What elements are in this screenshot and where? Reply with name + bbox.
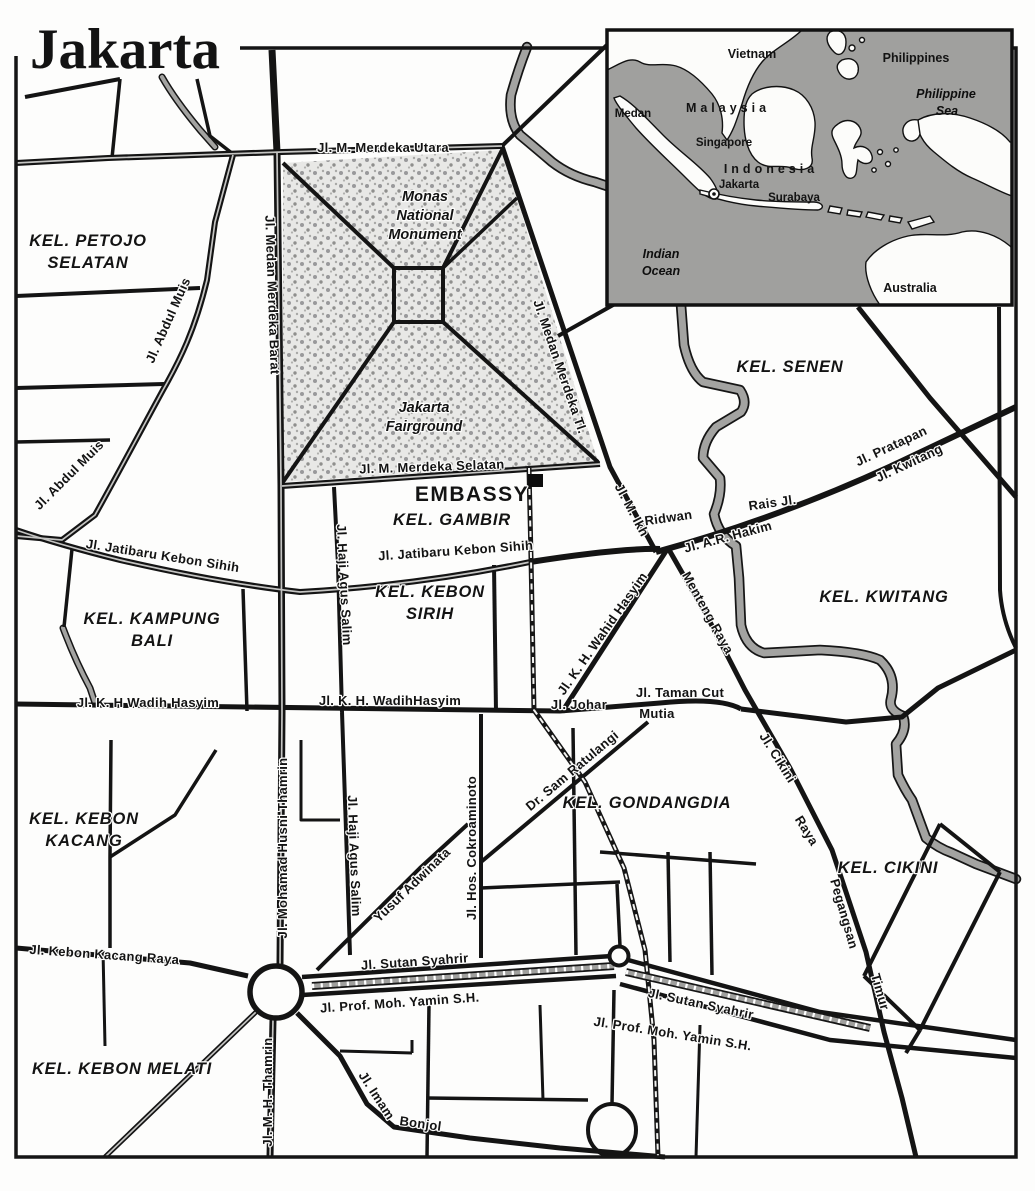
inset-label-jakarta: Jakarta — [719, 179, 760, 191]
street-label-husni-thamrin: Jl. Mohamad Husni Thamrin — [275, 758, 290, 939]
district-kampung-bali: KEL. KAMPUNG — [83, 610, 220, 628]
street-label-merdeka-utara: Jl. M. Merdeka Utara — [317, 140, 449, 155]
district-cikini: KEL. CIKINI — [838, 859, 938, 877]
label-embassy: EMBASSY — [415, 483, 529, 506]
street-label-mh-thamrin: Jl. M. H. Thamrin — [260, 1037, 275, 1146]
district-petojo-selatan: KEL. PETOJO — [29, 232, 147, 250]
label-monas-1: Monas — [402, 189, 448, 205]
inset-jakarta-marker-dot — [712, 192, 716, 196]
inset-map: Vietnam Philippines Malaysia Indonesia A… — [607, 30, 1012, 305]
thamrin-roundabout — [250, 966, 302, 1018]
inset-label-philippines: Philippines — [883, 51, 950, 65]
district-gondangdia: KEL. GONDANGDIA — [563, 794, 732, 812]
district-kebon-sirih-2: SIRIH — [406, 605, 454, 623]
inset-borneo — [744, 87, 815, 170]
district-kebon-sirih: KEL. KEBON — [375, 583, 485, 601]
district-kwitang: KEL. KWITANG — [819, 588, 948, 606]
street-label-taman-cut: Jl. Taman Cut — [636, 685, 725, 700]
label-fairground-2: Fairground — [386, 419, 464, 435]
street-label-mutia: Mutia — [639, 706, 675, 721]
page-title: Jakarta — [30, 18, 220, 81]
inset-label-medan: Medan — [615, 108, 651, 120]
small-roundabout — [610, 947, 629, 966]
label-fairground-1: Jakarta — [399, 400, 450, 416]
district-kebon-melati: KEL. KEBON MELATI — [32, 1060, 212, 1078]
inset-label-philippine-sea-2: Sea — [936, 104, 958, 118]
inset-label-philippine-sea-1: Philippine — [916, 87, 976, 101]
embassy-marker — [528, 474, 543, 487]
district-petojo-selatan-2: SELATAN — [47, 254, 128, 272]
district-kampung-bali-2: BALI — [131, 632, 173, 650]
street-label-wadih-hasyim-e: Jl. K. H. WadihHasyim — [319, 693, 461, 708]
label-monas-2: National — [396, 208, 454, 224]
jakarta-map-page: Jakarta KEL. PETOJO SELATAN KEL. SENEN K… — [0, 0, 1035, 1191]
inset-label-indian-ocean-2: Ocean — [642, 264, 681, 278]
label-monas-3: Monument — [388, 227, 462, 243]
inset-label-surabaya: Surabaya — [768, 192, 820, 204]
district-senen: KEL. SENEN — [736, 358, 843, 376]
street-label-cokroaminoto: Jl. Hos. Cokroaminoto — [464, 776, 479, 920]
city-map-canvas: Jakarta KEL. PETOJO SELATAN KEL. SENEN K… — [0, 0, 1035, 1191]
district-kebon-kacang: KEL. KEBON — [29, 810, 139, 828]
district-gambir: KEL. GAMBIR — [393, 511, 511, 529]
inset-label-indonesia: Indonesia — [724, 162, 818, 176]
inset-label-malaysia: Malaysia — [686, 101, 770, 115]
inset-label-vietnam: Vietnam — [728, 47, 776, 61]
inset-label-australia: Australia — [883, 281, 938, 295]
inset-label-indian-ocean-1: Indian — [643, 247, 680, 261]
district-kebon-kacang-2: KACANG — [45, 832, 122, 850]
street-label-johar: Jl. Johar — [551, 697, 607, 712]
inset-label-singapore: Singapore — [696, 137, 752, 149]
street-label-wadih-hasyim-w: Jl. K. H Wadih Hasyim — [77, 695, 219, 710]
